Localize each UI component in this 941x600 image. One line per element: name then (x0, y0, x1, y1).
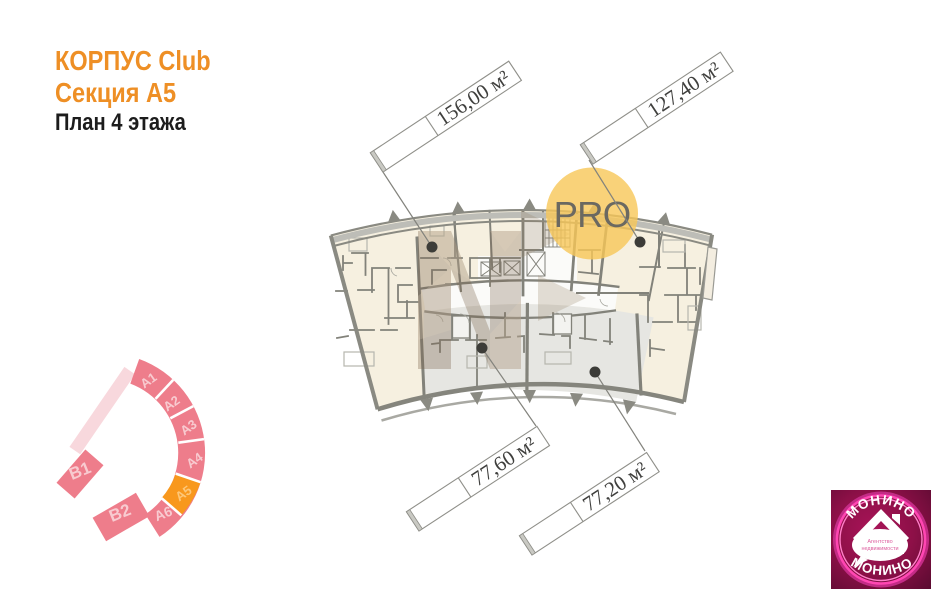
svg-text:127,40 м²: 127,40 м² (643, 57, 725, 123)
svg-text:недвижимости: недвижимости (861, 546, 898, 552)
svg-text:77,20 м²: 77,20 м² (578, 457, 651, 517)
svg-text:156,00 м²: 156,00 м² (432, 65, 514, 131)
svg-text:Агентство: Агентство (867, 539, 892, 545)
svg-text:PRO: PRO (554, 194, 631, 235)
svg-text:77,60 м²: 77,60 м² (467, 431, 540, 491)
